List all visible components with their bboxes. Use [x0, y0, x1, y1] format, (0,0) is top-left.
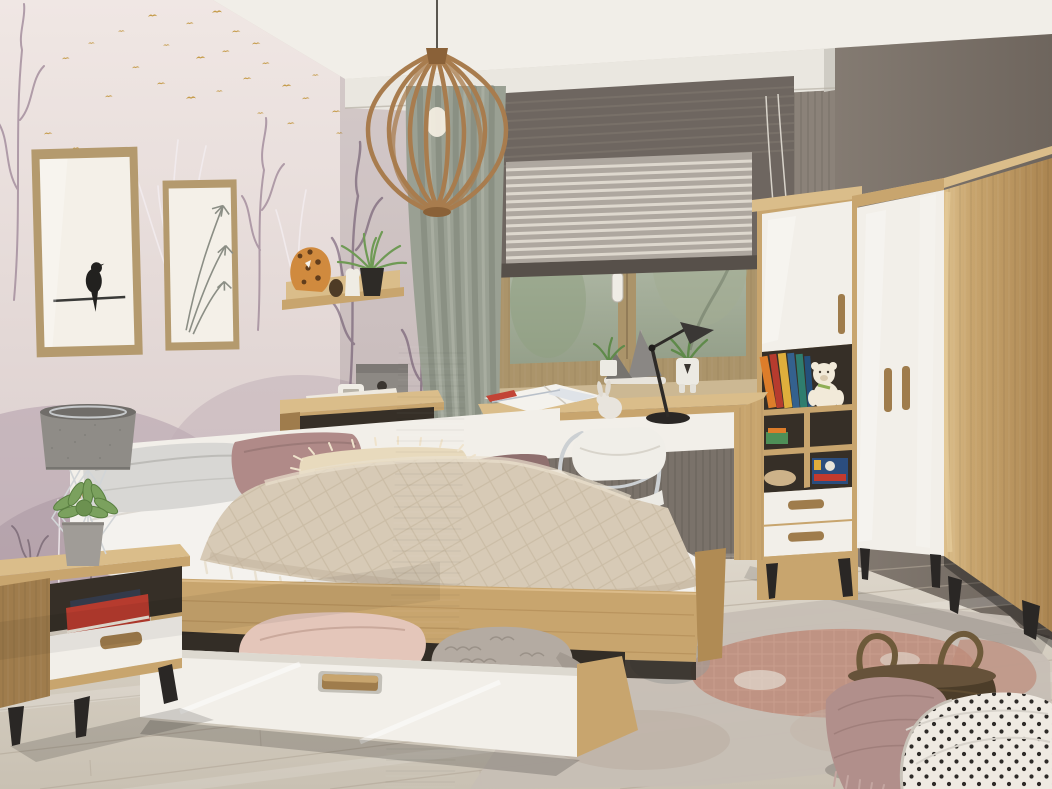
lamp-shade [40, 404, 136, 470]
giraffe-plush [290, 247, 331, 292]
figurine [345, 268, 360, 296]
pinecone [329, 279, 343, 297]
bookshelf-door-handle[interactable] [838, 294, 845, 334]
wardrobe-handle[interactable] [884, 368, 892, 412]
window-handle[interactable] [612, 272, 623, 302]
bookshelf-drawer-handle-1[interactable] [788, 499, 824, 510]
bedroom-photo [0, 0, 1052, 789]
drawer-handle[interactable] [318, 671, 383, 694]
plush-toy [764, 470, 796, 486]
bookshelf-drawer-handle-2[interactable] [788, 531, 824, 542]
wardrobe-handle[interactable] [902, 366, 910, 410]
picture-frame-bird [31, 147, 142, 358]
picture-frame-grass [163, 179, 240, 350]
game-box [812, 458, 848, 484]
bed-foot-end [695, 548, 726, 662]
